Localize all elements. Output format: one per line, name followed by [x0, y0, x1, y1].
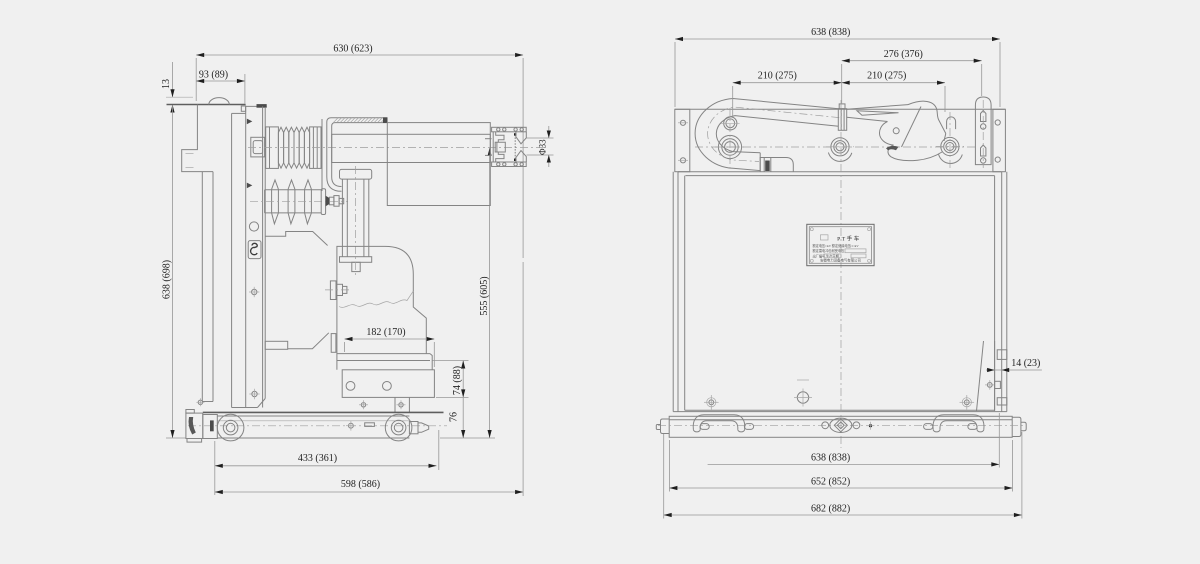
svg-text:182 (170): 182 (170): [366, 327, 405, 338]
svg-text:Φ33: Φ33: [538, 139, 548, 155]
svg-text:638 (838): 638 (838): [811, 27, 850, 38]
svg-text:14 (23): 14 (23): [1011, 358, 1040, 369]
svg-text:13: 13: [161, 79, 172, 89]
svg-text:210 (275): 210 (275): [867, 71, 906, 82]
svg-text:638 (698): 638 (698): [161, 260, 172, 299]
svg-text:PT手车: PT手车: [837, 234, 861, 242]
svg-text:210 (275): 210 (275): [758, 71, 797, 82]
svg-text:额定雷电冲击耐受电压: 额定雷电冲击耐受电压: [813, 248, 846, 253]
svg-text:76: 76: [449, 412, 460, 422]
svg-text:276 (376): 276 (376): [884, 49, 923, 60]
svg-text:638 (838): 638 (838): [811, 453, 850, 464]
svg-text:630 (623): 630 (623): [333, 43, 372, 54]
svg-text:598 (586): 598 (586): [341, 479, 380, 490]
svg-text:93 (89): 93 (89): [199, 69, 228, 80]
svg-text:74 (88): 74 (88): [452, 366, 463, 395]
svg-text:安徽电力设备电气有限公司: 安徽电力设备电气有限公司: [820, 258, 861, 263]
svg-text:433 (361): 433 (361): [298, 453, 337, 464]
svg-text:555 (605): 555 (605): [479, 276, 490, 315]
svg-text:682 (882): 682 (882): [811, 503, 850, 514]
svg-text:652 (852): 652 (852): [811, 476, 850, 487]
svg-text:额定电压□kV 额定绝缘电压□□kV: 额定电压□kV 额定绝缘电压□□kV: [813, 243, 860, 248]
